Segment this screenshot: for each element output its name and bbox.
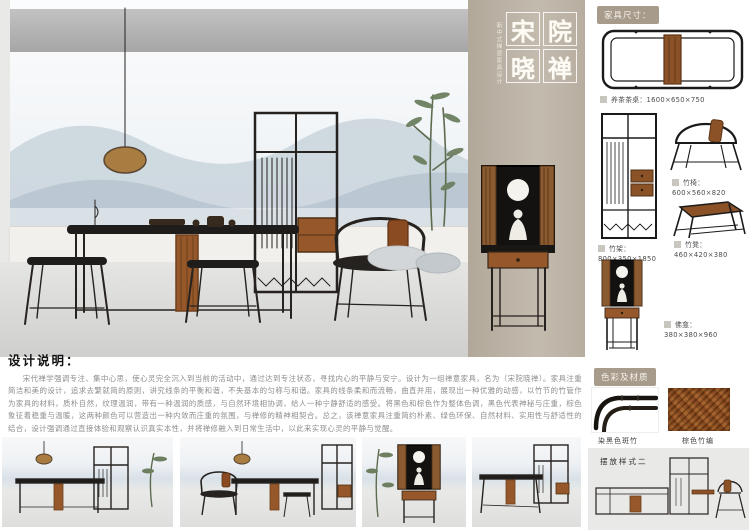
buddha-shrine-diagram — [596, 258, 648, 354]
poster-subtitle-vertical: 新中式禅意家具设计 — [492, 12, 503, 94]
dim-label-chair: 竹椅： 600×560×820 — [672, 178, 726, 198]
bamboo-chair-diagram — [664, 112, 746, 174]
poster-canvas: 新中式禅意家具设计 宋 院 晓 禅 设计说明： 宋代禅学强调专注、集中心思，使心… — [0, 0, 749, 530]
thumbnail-render-4 — [472, 437, 581, 527]
design-notes-heading: 设计说明： — [8, 350, 582, 369]
materials-panel-header: 色彩及材质 — [594, 368, 656, 386]
bamboo-stool-diagram — [666, 198, 748, 240]
dim-label-tea-table: 养茶茶桌：1600×650×750 — [600, 95, 705, 105]
poster-title-plaque: 新中式禅意家具设计 宋 院 晓 禅 — [492, 12, 578, 94]
arrangement-lineart-image — [588, 448, 749, 530]
thumbnail-render-2 — [180, 437, 356, 527]
poster-title-grid: 宋 院 晓 禅 — [506, 12, 577, 94]
title-char-4: 禅 — [543, 49, 577, 83]
legend-square-icon — [664, 321, 671, 328]
black-bamboo-material-label: 染黑色斑竹 — [598, 436, 638, 446]
weave-texture-overlay — [668, 388, 730, 431]
brown-weave-material-photo — [668, 388, 730, 431]
legend-square-icon — [600, 96, 607, 103]
brown-weave-material-label: 棕色竹编 — [682, 436, 714, 446]
thumbnail-render-1 — [2, 437, 173, 527]
title-char-3: 晓 — [506, 49, 540, 83]
design-notes-body: 宋代禅学强调专注、集中心思，使心灵完全沉入到当前的活动中，通过达到专注状态，寻找… — [8, 373, 582, 435]
legend-square-icon — [674, 241, 681, 248]
bamboo-shelf-diagram — [598, 112, 660, 242]
tea-table-topview-diagram — [600, 28, 746, 92]
title-char-2: 院 — [543, 12, 577, 46]
legend-square-icon — [672, 179, 679, 186]
title-char-1: 宋 — [506, 12, 540, 46]
black-bamboo-material-photo — [592, 388, 658, 432]
arrangement-style-box: 摆放样式二 — [588, 448, 749, 530]
design-notes-section: 设计说明： 宋代禅学强调专注、集中心思，使心灵完全沉入到当前的活动中，通过达到专… — [8, 350, 582, 436]
thumbnail-render-3 — [362, 437, 466, 527]
main-render-scene: 新中式禅意家具设计 宋 院 晓 禅 — [0, 0, 585, 357]
legend-square-icon — [598, 245, 605, 252]
dimensions-panel-header: 家具尺寸： — [597, 6, 659, 24]
dim-label-shrine: 佛龛： 380×380×960 — [664, 320, 718, 340]
dim-label-stool: 竹凳： 460×420×380 — [674, 240, 728, 260]
